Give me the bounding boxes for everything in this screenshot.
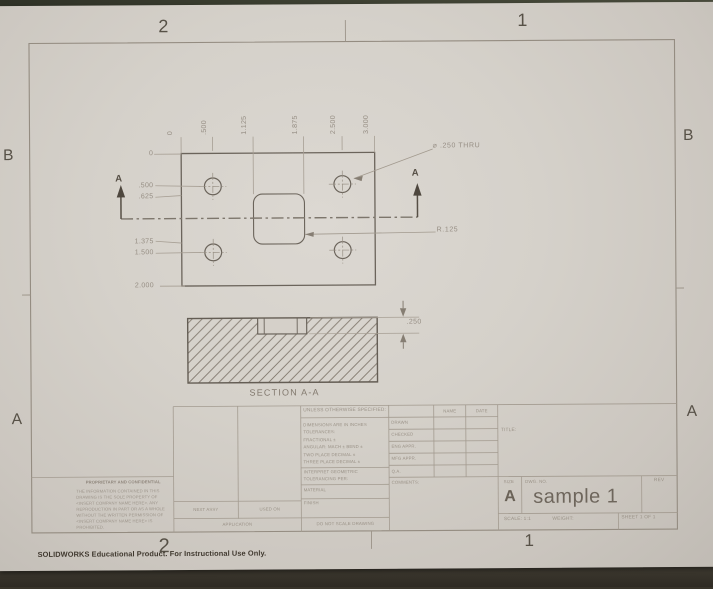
pocket-outline (253, 194, 304, 244)
approval-row-qa: Q.A. (392, 468, 401, 473)
section-cut-line (121, 217, 417, 219)
rev-label: REV (641, 478, 677, 483)
name-header: NAME (434, 408, 466, 413)
proprietary-header: PROPRIETARY AND CONFIDENTIAL (73, 479, 173, 485)
ordinate-leader-lines-left (154, 154, 201, 286)
tolerance-line-5: TWO PLACE DECIMAL ± (303, 452, 355, 457)
title-label: TITLE: (501, 428, 517, 433)
next-assy-label: NEXT ASSY (173, 507, 238, 512)
depth-arrow-top (400, 308, 406, 317)
interpret-line-2: TOLERANCING PER: (304, 476, 349, 481)
ordinate-top-3000: 3.000 (362, 115, 370, 134)
section-arrow-right-head (413, 183, 421, 196)
tolerance-line-1: DIMENSIONS ARE IN INCHES (303, 421, 367, 426)
proprietary-line-3: <INSERT COMPANY NAME HERE>. ANY (76, 500, 158, 506)
tolerance-line-3: FRACTIONAL ± (303, 437, 335, 442)
depth-arrow-bottom (400, 334, 406, 343)
zone-top-1: 1 (517, 10, 527, 31)
ordinate-top-1125: 1.125 (241, 116, 249, 135)
section-arrow-right-label: A (412, 168, 419, 179)
ordinate-top-0: 0 (167, 131, 175, 135)
approval-row-eng-appr: ENG APPR. (391, 444, 416, 449)
section-notch-fill (258, 317, 307, 335)
proprietary-line-1: THE INFORMATION CONTAINED IN THIS (76, 488, 159, 494)
zone-right-b: B (683, 127, 693, 145)
interpret-line-1: INTERPRET GEOMETRIC (304, 469, 358, 474)
ordinate-left-1375: 1.375 (111, 238, 154, 245)
size-label: SIZE (504, 479, 514, 484)
zone-bottom-1: 1 (524, 531, 534, 551)
sheet-label: SHEET 1 OF 1 (621, 515, 655, 520)
ordinate-left-625: .625 (110, 193, 153, 200)
approval-row-drawn: DRAWN (391, 420, 408, 425)
proprietary-line-7: PROHIBITED. (76, 525, 104, 530)
ordinate-ext-lines-top (181, 136, 375, 195)
hole-callout-leader (354, 149, 433, 178)
tolerance-line-2: TOLERANCES: (303, 429, 335, 434)
scale-label: SCALE: 1:1 (504, 516, 531, 521)
section-arrow-left-label: A (115, 173, 122, 184)
proprietary-line-6: <INSERT COMPANY NAME HERE> IS (76, 518, 152, 523)
hole-callout: ⌀ .250 THRU (433, 141, 481, 149)
zone-left-a: A (12, 411, 22, 429)
weight-label: WEIGHT: (552, 516, 573, 521)
do-not-scale-label: DO NOT SCALE DRAWING (301, 521, 389, 527)
approval-row-mfg-appr: MFG APPR. (391, 456, 416, 461)
depth-dim-label: .250 (407, 318, 422, 325)
tolerance-header: UNLESS OTHERWISE SPECIFIED: (303, 407, 386, 413)
approval-row-checked: CHECKED (391, 432, 413, 437)
approval-row-comments: COMMENTS: (392, 479, 420, 484)
proprietary-line-4: REPRODUCTION IN PART OR AS A WHOLE (76, 506, 165, 512)
ordinate-top-500: .500 (200, 120, 208, 135)
part-outline (181, 152, 375, 286)
zone-top-2: 2 (158, 16, 168, 37)
material-label: MATERIAL (304, 487, 326, 492)
date-header: DATE (466, 408, 498, 413)
tolerance-line-6: THREE PLACE DECIMAL ± (304, 459, 361, 464)
used-on-label: USED ON (238, 506, 301, 511)
proprietary-line-2: DRAWING IS THE SOLE PROPERTY OF (76, 494, 157, 499)
fillet-arrow (305, 232, 314, 237)
size-value: A (504, 488, 516, 506)
ordinate-left-1500: 1.500 (111, 249, 154, 256)
finish-label: FINISH (304, 500, 319, 505)
drawing-sheet: 2 1 2 1 B A B A 0 .500 1.125 1.875 2.500… (0, 0, 713, 589)
dwg-no-value: sample 1 (533, 485, 618, 509)
ordinate-left-2000: 2.000 (111, 282, 154, 289)
zone-right-a: A (687, 403, 697, 421)
section-view-title: SECTION A-A (244, 387, 326, 398)
zone-left-b: B (3, 147, 13, 165)
ordinate-top-1875: 1.875 (291, 115, 299, 134)
fillet-radius-label: R.125 (437, 226, 459, 233)
tolerance-line-4: ANGULAR: MACH ± BEND ± (303, 444, 362, 449)
proprietary-line-5: WITHOUT THE WRITTEN PERMISSION OF (76, 512, 163, 518)
solidworks-footer: SOLIDWORKS Educational Product. For Inst… (38, 548, 267, 558)
dwg-no-label: DWG. NO. (525, 478, 547, 483)
ordinate-top-2500: 2.500 (330, 115, 338, 134)
ordinate-left-0: 0 (110, 150, 153, 157)
fillet-leader (305, 232, 436, 234)
application-label: APPLICATION (173, 521, 301, 527)
